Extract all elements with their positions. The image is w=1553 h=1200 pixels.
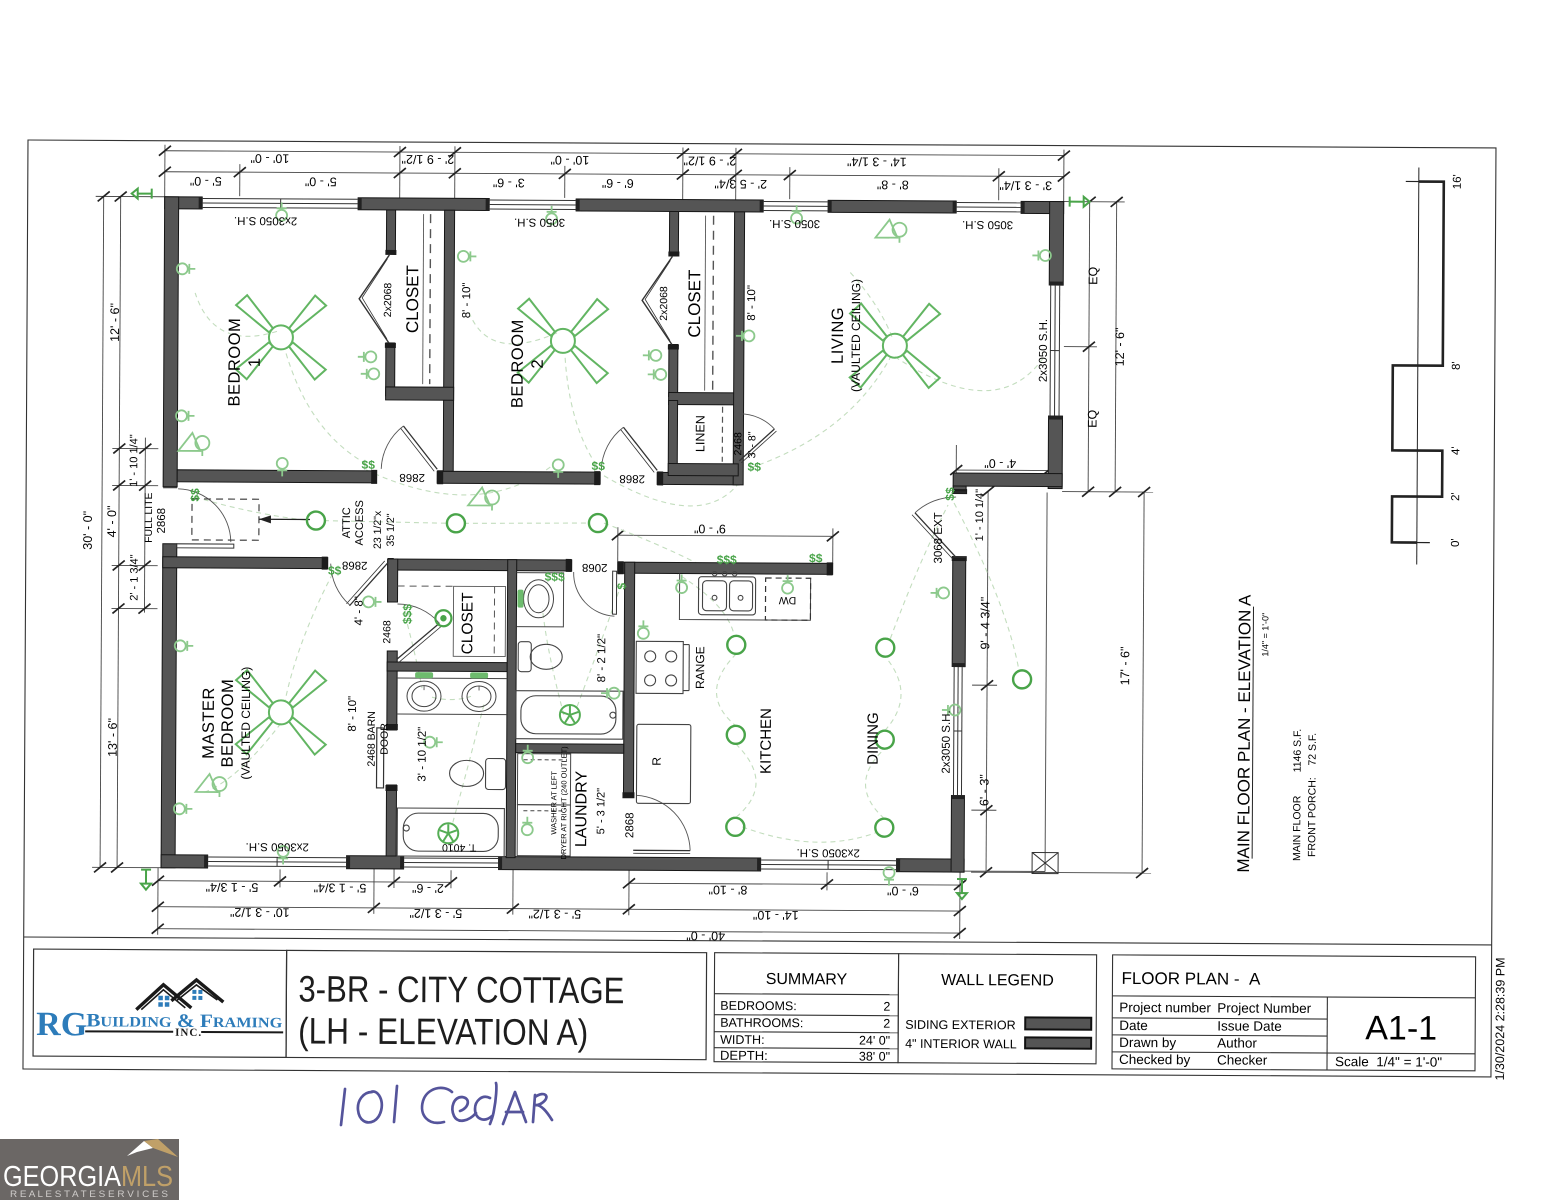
svg-text:2x3050 S.H.: 2x3050 S.H.	[1038, 319, 1050, 382]
svg-text:DOOR: DOOR	[379, 723, 391, 755]
svg-text:2: 2	[883, 1017, 890, 1031]
svg-text:DINING: DINING	[865, 712, 882, 765]
svg-text:KITCHEN: KITCHEN	[758, 708, 775, 774]
svg-text:DW: DW	[779, 594, 797, 606]
svg-text:Issue Date: Issue Date	[1217, 1018, 1282, 1033]
svg-text:Scale 1/4" = 1'-0": Scale 1/4" = 1'-0"	[1335, 1054, 1442, 1070]
svg-text:FULL LITE: FULL LITE	[143, 492, 155, 542]
svg-text:2868: 2868	[342, 559, 368, 571]
svg-text:RANGE: RANGE	[693, 646, 707, 689]
svg-text:3' - 6": 3' - 6"	[493, 176, 525, 190]
svg-text:10' - 0": 10' - 0"	[250, 151, 289, 165]
svg-text:3068 EXT: 3068 EXT	[933, 512, 945, 563]
svg-text:2468 BARN: 2468 BARN	[366, 711, 378, 767]
svg-text:$$: $$	[943, 487, 957, 501]
svg-text:5' - 1 3/4": 5' - 1 3/4"	[206, 880, 259, 894]
svg-text:9' - 0": 9' - 0"	[694, 522, 726, 536]
svg-text:Checked by: Checked by	[1119, 1052, 1191, 1067]
svg-text:MAIN FLOOR PLAN - ELEVATION A: MAIN FLOOR PLAN - ELEVATION A	[1234, 594, 1255, 873]
svg-text:4' - 0": 4' - 0"	[105, 506, 119, 538]
svg-text:FLOOR PLAN - A: FLOOR PLAN - A	[1121, 969, 1261, 989]
svg-text:6' - 0": 6' - 0"	[887, 884, 919, 898]
svg-text:$$: $$	[188, 488, 202, 502]
svg-text:5' - 0": 5' - 0"	[305, 174, 337, 188]
svg-text:5' - 0": 5' - 0"	[190, 174, 222, 188]
svg-text:RG: RG	[36, 1006, 87, 1043]
svg-text:(LH - ELEVATION A): (LH - ELEVATION A)	[298, 1010, 588, 1053]
svg-text:WIDTH:: WIDTH:	[720, 1033, 765, 1047]
svg-text:14' - 3 1/4": 14' - 3 1/4"	[847, 154, 907, 168]
svg-text:2x2068: 2x2068	[658, 286, 670, 321]
svg-text:13' - 6": 13' - 6"	[106, 718, 120, 757]
svg-text:5' - 1 3/4": 5' - 1 3/4"	[314, 881, 367, 895]
svg-text:12' - 6": 12' - 6"	[1113, 327, 1127, 366]
svg-text:WALL LEGEND: WALL LEGEND	[941, 972, 1054, 990]
svg-text:WASHER AT LEFT: WASHER AT LEFT	[549, 771, 558, 835]
svg-text:23 1/2"x: 23 1/2"x	[372, 510, 384, 549]
svg-text:2468: 2468	[732, 432, 744, 456]
svg-text:LINEN: LINEN	[693, 415, 707, 452]
svg-text:$$$: $$$	[545, 570, 565, 584]
svg-text:MAIN FLOOR 1146 S.F.: MAIN FLOOR 1146 S.F.	[1291, 729, 1304, 861]
svg-text:$: $	[615, 583, 629, 590]
svg-text:Date: Date	[1119, 1018, 1148, 1033]
svg-text:6' - 3": 6' - 3"	[977, 774, 991, 806]
svg-text:A1-1: A1-1	[1365, 1009, 1437, 1047]
svg-text:2x3050 S.H.: 2x3050 S.H.	[941, 710, 953, 773]
svg-text:2868: 2868	[399, 471, 425, 483]
svg-text:DRYER AT RIGHT (240 OUTLET): DRYER AT RIGHT (240 OUTLET)	[559, 746, 569, 860]
svg-text:17' - 6": 17' - 6"	[1118, 647, 1132, 686]
svg-text:2: 2	[529, 359, 547, 369]
svg-text:ACCESS: ACCESS	[354, 500, 366, 545]
svg-text:Drawn by: Drawn by	[1119, 1035, 1176, 1050]
svg-text:40' - 0": 40' - 0"	[686, 929, 725, 943]
svg-text:2' - 5 3/4": 2' - 5 3/4"	[714, 177, 767, 191]
svg-text:CLOSET: CLOSET	[685, 270, 704, 338]
svg-text:38' 0": 38' 0"	[859, 1050, 890, 1064]
svg-text:(VAULTED CEILING): (VAULTED CEILING)	[849, 279, 864, 392]
svg-text:9' - 4 3/4": 9' - 4 3/4"	[978, 597, 992, 650]
svg-text:1' - 10 1/4": 1' - 10 1/4"	[974, 489, 986, 542]
svg-text:2868: 2868	[156, 508, 168, 534]
svg-text:2x3050 S.H.: 2x3050 S.H.	[796, 846, 859, 858]
svg-text:SUMMARY: SUMMARY	[766, 971, 848, 988]
svg-text:14' - 10": 14' - 10"	[753, 908, 799, 922]
svg-text:2' - 6": 2' - 6"	[412, 881, 444, 895]
svg-text:3' - 3 1/4": 3' - 3 1/4"	[999, 178, 1052, 192]
svg-text:24' 0": 24' 0"	[859, 1034, 890, 1048]
svg-text:$$: $$	[748, 460, 762, 474]
svg-text:2868: 2868	[619, 472, 645, 484]
svg-text:2' - 9 1/2": 2' - 9 1/2"	[684, 154, 737, 168]
svg-text:5' - 3 1/2": 5' - 3 1/2"	[528, 907, 581, 921]
svg-text:CLOSET: CLOSET	[403, 265, 422, 333]
svg-text:1/30/2024 2:28:39 PM: 1/30/2024 2:28:39 PM	[1493, 957, 1508, 1080]
svg-text:T. 4010: T. 4010	[442, 841, 477, 853]
svg-text:BEDROOM: BEDROOM	[226, 318, 244, 407]
svg-text:0': 0'	[1450, 538, 1462, 547]
svg-text:2x3050 S.H.: 2x3050 S.H.	[234, 214, 297, 226]
svg-text:Checker: Checker	[1217, 1052, 1268, 1067]
svg-text:4' - 0": 4' - 0"	[984, 456, 1016, 470]
svg-text:3050 S.H.: 3050 S.H.	[962, 218, 1013, 230]
svg-text:BEDROOMS:: BEDROOMS:	[720, 999, 796, 1013]
svg-text:$$$: $$$	[400, 604, 414, 624]
svg-text:8': 8'	[1451, 361, 1463, 370]
svg-text:8' - 10": 8' - 10"	[461, 283, 473, 319]
svg-text:BEDROOM: BEDROOM	[509, 319, 527, 408]
svg-text:$$$: $$$	[717, 553, 737, 567]
svg-text:6' - 6": 6' - 6"	[602, 176, 634, 190]
svg-text:1/4" = 1'-0": 1/4" = 1'-0"	[1260, 613, 1270, 657]
svg-text:Project Number: Project Number	[1217, 1000, 1311, 1016]
svg-text:8' - 10": 8' - 10"	[347, 696, 359, 732]
svg-text:10' - 0": 10' - 0"	[550, 153, 589, 167]
svg-text:2': 2'	[1450, 492, 1462, 501]
svg-text:2068: 2068	[582, 561, 608, 573]
svg-text:2x3050 S.H.: 2x3050 S.H.	[246, 840, 309, 852]
svg-text:BEDROOM: BEDROOM	[219, 679, 237, 768]
svg-text:2x2068: 2x2068	[382, 283, 394, 318]
svg-text:2' - 1 3/4": 2' - 1 3/4"	[129, 554, 141, 601]
svg-text:EQ: EQ	[1086, 266, 1100, 284]
svg-text:2868: 2868	[624, 812, 636, 838]
svg-text:4': 4'	[1450, 446, 1462, 455]
svg-text:3' - 8": 3' - 8"	[746, 431, 758, 458]
svg-text:R E A L E S T A T E S E R: R E A L E S T A T E S E R V I C E S	[10, 1189, 168, 1200]
svg-text:4' - 8": 4' - 8"	[353, 596, 365, 625]
svg-text:DEPTH:: DEPTH:	[720, 1048, 768, 1063]
svg-text:2468: 2468	[381, 620, 393, 644]
svg-text:R: R	[650, 757, 664, 766]
svg-text:Author: Author	[1217, 1035, 1257, 1050]
svg-text:SIDING EXTERIOR: SIDING EXTERIOR	[905, 1018, 1016, 1033]
svg-text:12' - 6": 12' - 6"	[108, 303, 122, 342]
svg-text:3050 S.H.: 3050 S.H.	[769, 217, 820, 229]
svg-text:3050 S.H.: 3050 S.H.	[514, 216, 565, 228]
svg-text:LIVING: LIVING	[829, 307, 847, 364]
svg-text:35 1/2": 35 1/2"	[385, 513, 397, 546]
svg-text:16': 16'	[1452, 174, 1464, 189]
svg-text:30' - 0": 30' - 0"	[81, 511, 95, 550]
svg-text:$$: $$	[362, 458, 376, 472]
svg-text:2: 2	[883, 1000, 890, 1014]
svg-text:Project number: Project number	[1119, 1000, 1211, 1015]
svg-text:2' - 9 1/2": 2' - 9 1/2"	[402, 152, 455, 166]
svg-text:8' - 10": 8' - 10"	[746, 285, 758, 321]
svg-text:ATTIC: ATTIC	[341, 507, 353, 538]
svg-text:5' - 3 1/2": 5' - 3 1/2"	[409, 906, 462, 920]
svg-text:5' - 3 1/2": 5' - 3 1/2"	[595, 788, 607, 835]
svg-text:3' - 10 1/2": 3' - 10 1/2"	[417, 727, 429, 782]
svg-text:INC.: INC.	[175, 1027, 202, 1039]
svg-text:1' - 10 1/4": 1' - 10 1/4"	[128, 434, 140, 487]
svg-text:CLOSET: CLOSET	[459, 592, 476, 655]
svg-text:EQ: EQ	[1085, 409, 1099, 427]
svg-text:LAUNDRY: LAUNDRY	[573, 771, 590, 848]
svg-text:(VAULTED CEILING): (VAULTED CEILING)	[239, 667, 254, 780]
svg-text:3-BR - CITY COTTAGE: 3-BR - CITY COTTAGE	[298, 968, 624, 1011]
svg-text:10' - 3 1/2": 10' - 3 1/2"	[230, 905, 290, 919]
svg-text:$$: $$	[592, 459, 606, 473]
svg-text:8' - 8": 8' - 8"	[877, 178, 909, 192]
svg-text:FRONT PORCH: 72 S.F.: FRONT PORCH: 72 S.F.	[1306, 733, 1319, 857]
svg-text:BATHROOMS:: BATHROOMS:	[720, 1016, 803, 1030]
svg-text:$$: $$	[328, 564, 342, 578]
svg-text:MASTER: MASTER	[200, 687, 218, 759]
svg-text:$$: $$	[809, 551, 823, 565]
svg-text:1: 1	[246, 357, 264, 367]
svg-text:4" INTERIOR WALL: 4" INTERIOR WALL	[905, 1037, 1017, 1052]
svg-text:8' - 2 1/2": 8' - 2 1/2"	[596, 634, 608, 683]
svg-text:8' - 10": 8' - 10"	[709, 883, 748, 897]
